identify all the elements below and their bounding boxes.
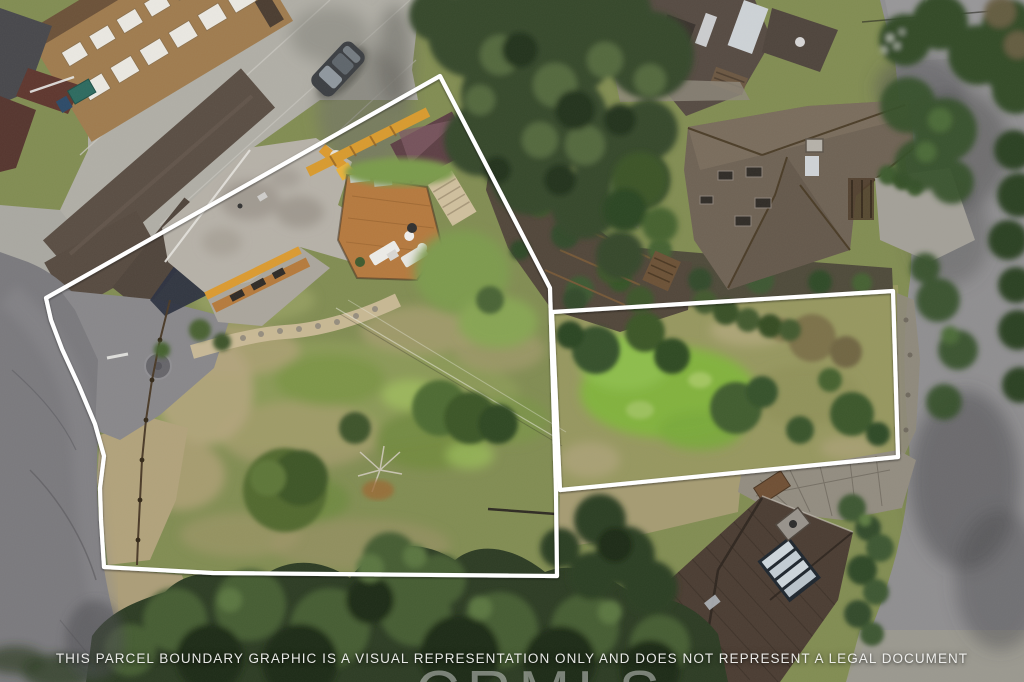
parcel-disclaimer: THIS PARCEL BOUNDARY GRAPHIC IS A VISUAL… <box>56 651 968 666</box>
aerial-parcel-photo: CRMLS THIS PARCEL BOUNDARY GRAPHIC IS A … <box>0 0 1024 682</box>
aerial-photo-canvas <box>0 0 1024 682</box>
photo-grain <box>0 0 1024 682</box>
